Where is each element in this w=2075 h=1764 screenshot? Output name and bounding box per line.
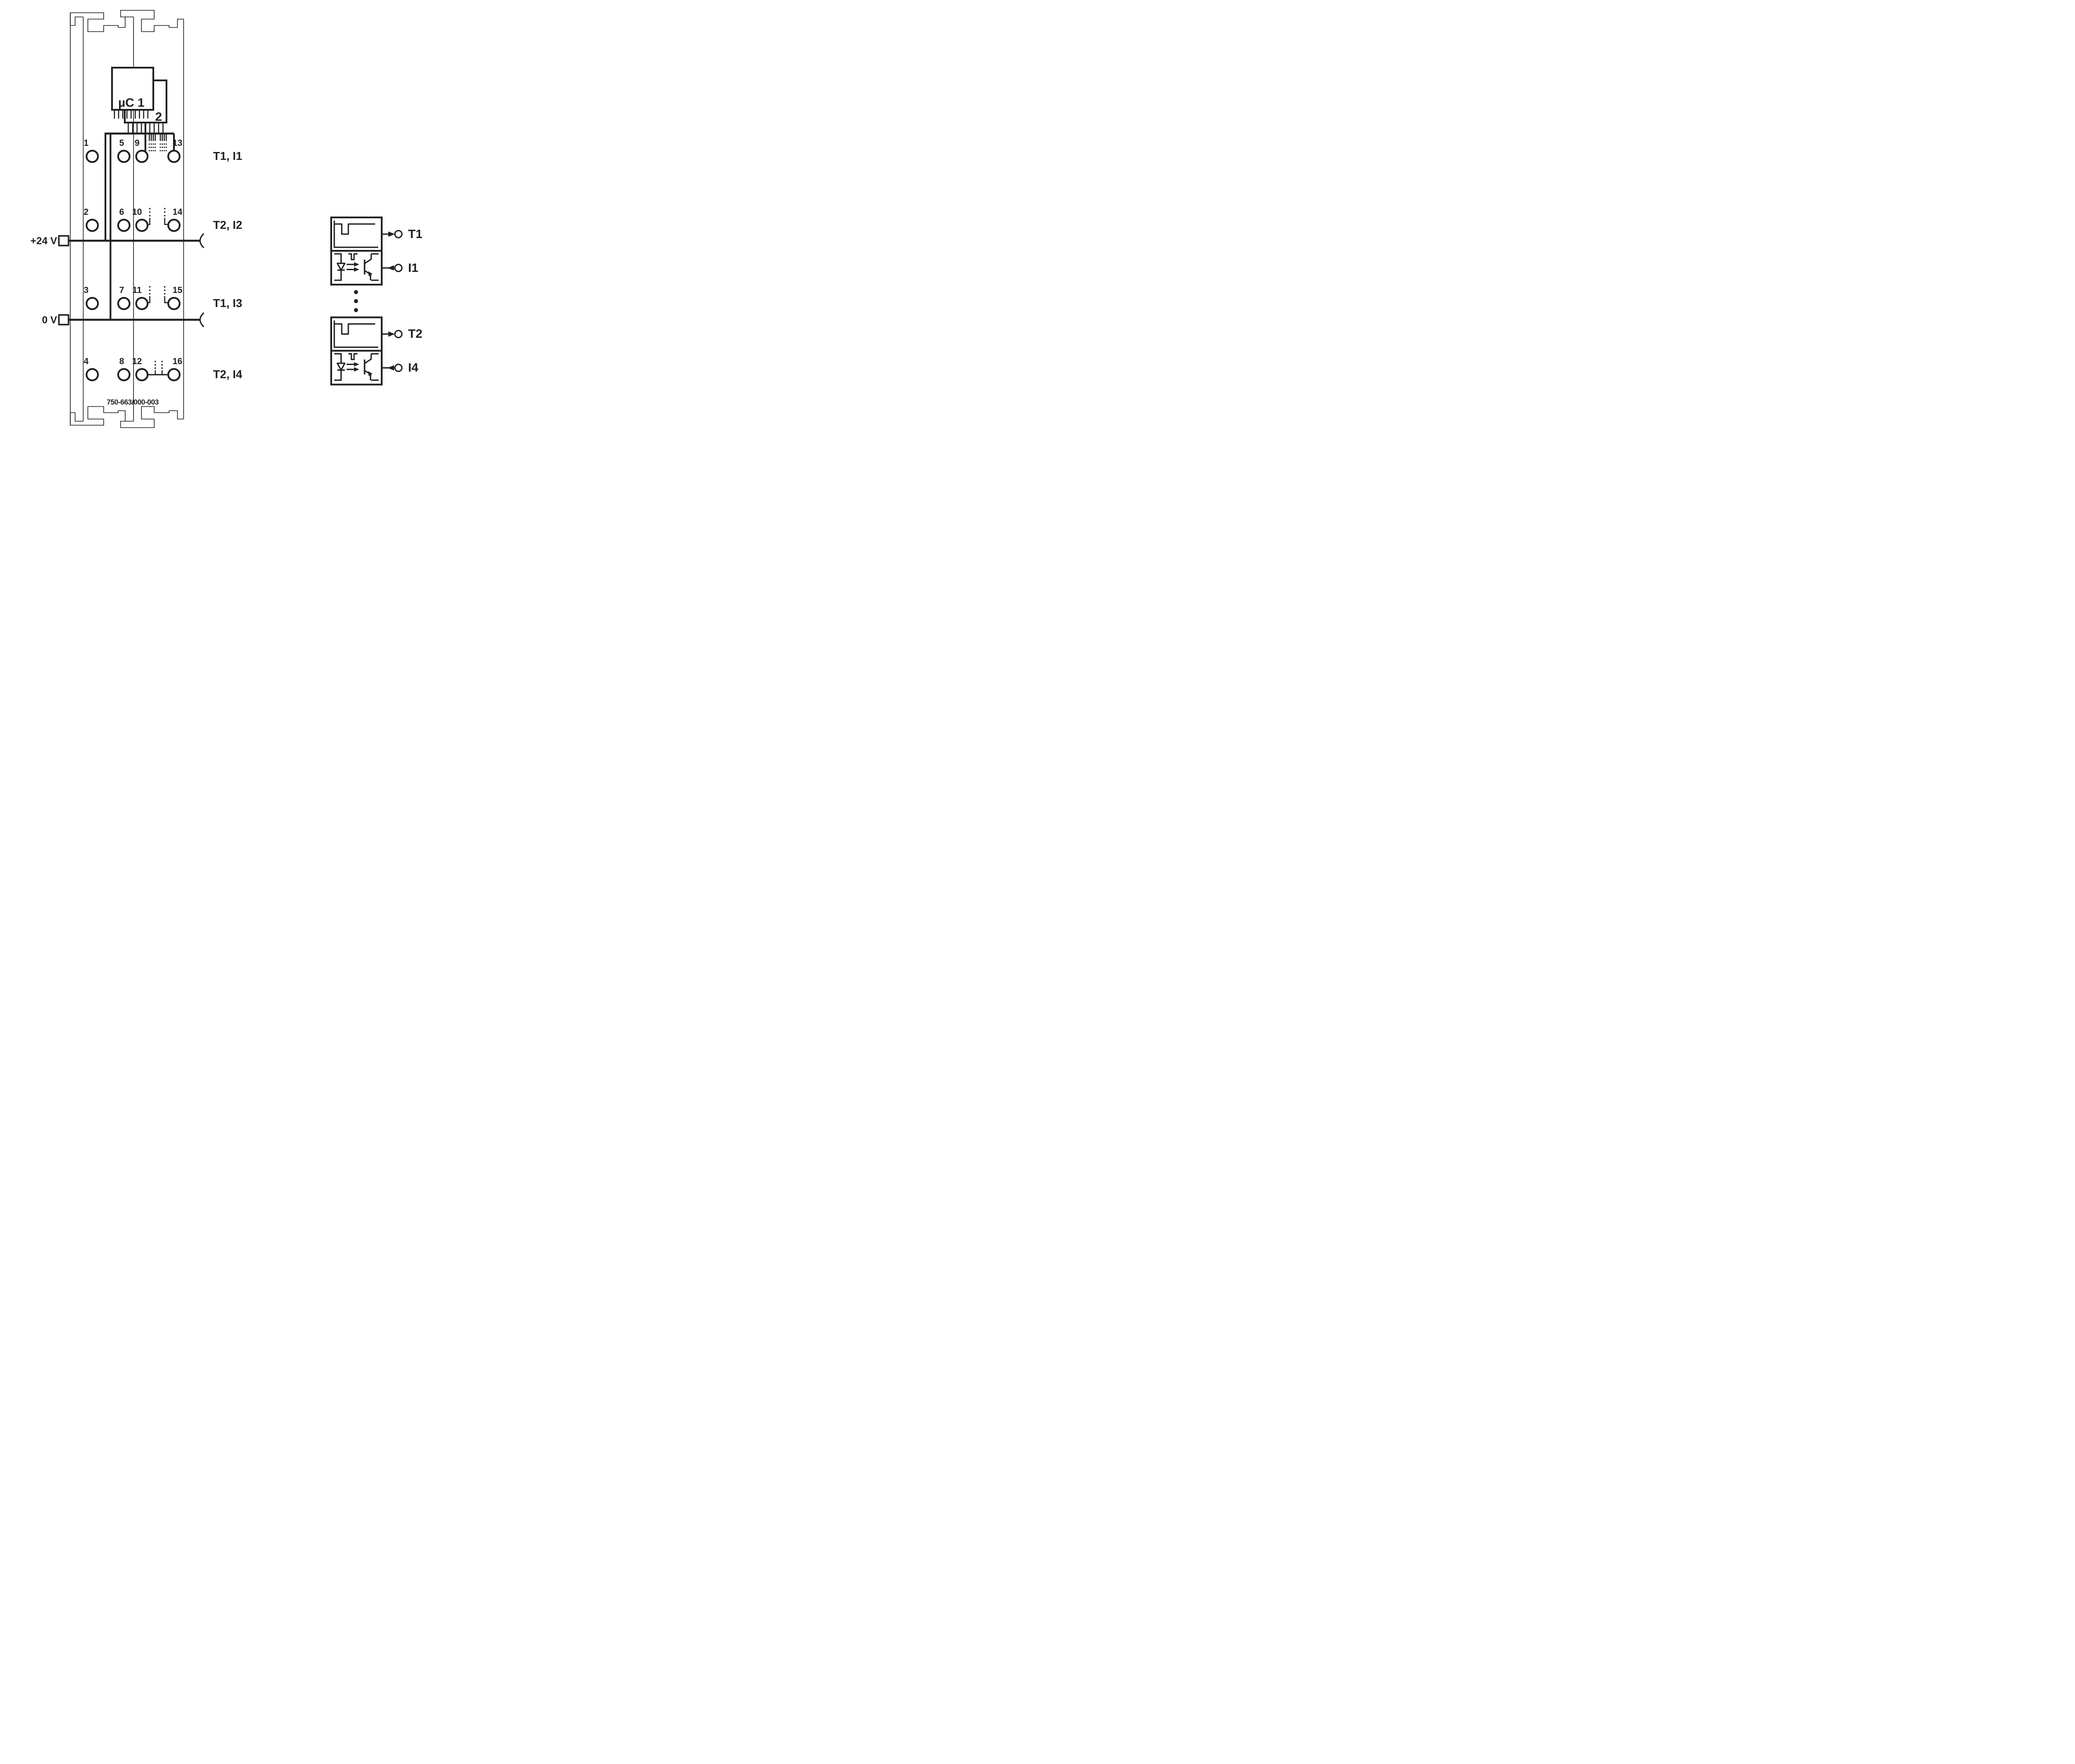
terminal-12-circle <box>136 369 148 380</box>
terminal-row-2: 2 6 10 14 T2, I2 <box>83 207 242 231</box>
ellipsis-dots-icon <box>354 290 358 312</box>
casing-bottom-profile <box>70 407 184 428</box>
zerov-continuation-arc-icon <box>200 313 204 327</box>
terminal-15-circle <box>168 298 180 309</box>
row-2-dotted-links <box>149 208 165 216</box>
row-3-hook-left <box>148 296 150 303</box>
row-2-signal-label: T2, I2 <box>213 218 242 231</box>
bus-dotted-connections <box>149 134 167 152</box>
row-3-dotted-links <box>149 286 165 294</box>
terminal-4-circle <box>87 369 98 380</box>
terminal-16-circle <box>168 369 180 380</box>
terminal-row-3: 3 7 11 15 T1, I3 <box>83 286 242 310</box>
terminal-10-circle <box>136 220 148 231</box>
terminal-15-number: 15 <box>173 286 182 295</box>
channel-1-input-label: I1 <box>408 261 418 275</box>
channel-1-output-label: T1 <box>408 227 423 241</box>
terminal-13-number: 13 <box>173 138 182 148</box>
channel-n-detail <box>331 318 402 385</box>
terminal-6-number: 6 <box>119 207 124 217</box>
plus24v-label: +24 V <box>30 235 57 246</box>
channel-detail-circuits: T1 I1 T2 I4 <box>331 217 423 385</box>
uc-chip-1-label: µC 1 <box>118 96 145 109</box>
row-4-signal-label: T2, I4 <box>213 368 242 381</box>
terminal-3-circle <box>87 298 98 309</box>
channel-n-output-label: T2 <box>408 327 423 340</box>
uc-block: µC 1 2 <box>112 68 166 133</box>
terminal-14-circle <box>168 220 180 231</box>
plus24v-pad-icon <box>59 236 69 246</box>
terminal-11-number: 11 <box>132 286 141 295</box>
terminal-6-circle <box>118 220 130 231</box>
plus24v-rail: +24 V <box>30 234 204 248</box>
uc-chip-1-pins <box>115 110 148 118</box>
terminal-row-4: 4 8 12 16 T2, I4 <box>83 357 242 381</box>
zerov-label: 0 V <box>42 314 57 325</box>
terminal-8-number: 8 <box>119 357 124 366</box>
row-2-hook-left <box>148 218 150 224</box>
terminal-1-number: 1 <box>83 138 88 148</box>
casing-top-profile <box>70 11 184 32</box>
terminal-row-1: 1 5 9 13 T1, I1 <box>83 138 242 163</box>
terminal-10-number: 10 <box>132 207 142 217</box>
row-3-signal-label: T1, I3 <box>213 296 242 310</box>
zerov-pad-icon <box>59 315 69 325</box>
terminal-8-circle <box>118 369 130 380</box>
terminal-1-circle <box>87 151 98 162</box>
channel-1-detail <box>331 217 402 285</box>
row-1-signal-label: T1, I1 <box>213 149 242 163</box>
terminal-7-number: 7 <box>119 286 124 295</box>
terminal-7-circle <box>118 298 130 309</box>
io-module-schematic: µC 1 2 +24 V 0 V 1 5 9 13 T1, I1 <box>30 11 242 428</box>
terminal-2-circle <box>87 220 98 231</box>
uc-chip-2-label: 2 <box>155 110 162 123</box>
terminal-2-number: 2 <box>83 207 88 217</box>
part-number: 750-663/000-003 <box>107 398 159 406</box>
terminal-11-circle <box>136 298 148 309</box>
row-4-dotted-links <box>155 361 163 369</box>
terminal-12-number: 12 <box>132 357 142 366</box>
terminal-4-number: 4 <box>83 357 89 366</box>
plus24v-continuation-arc-icon <box>200 234 204 248</box>
wiring-diagram: µC 1 2 +24 V 0 V 1 5 9 13 T1, I1 <box>0 0 519 441</box>
terminal-16-number: 16 <box>173 357 182 366</box>
terminal-14-number: 14 <box>173 207 183 217</box>
terminal-5-number: 5 <box>119 138 124 148</box>
terminal-9-circle <box>136 151 148 162</box>
terminal-9-number: 9 <box>134 138 139 148</box>
zerov-rail: 0 V <box>42 313 204 327</box>
channel-n-input-label: I4 <box>408 361 419 374</box>
diagram-page: µC 1 2 +24 V 0 V 1 5 9 13 T1, I1 <box>0 0 519 441</box>
terminal-5-circle <box>118 151 130 162</box>
terminal-3-number: 3 <box>83 286 88 295</box>
terminal-13-circle <box>168 151 180 162</box>
